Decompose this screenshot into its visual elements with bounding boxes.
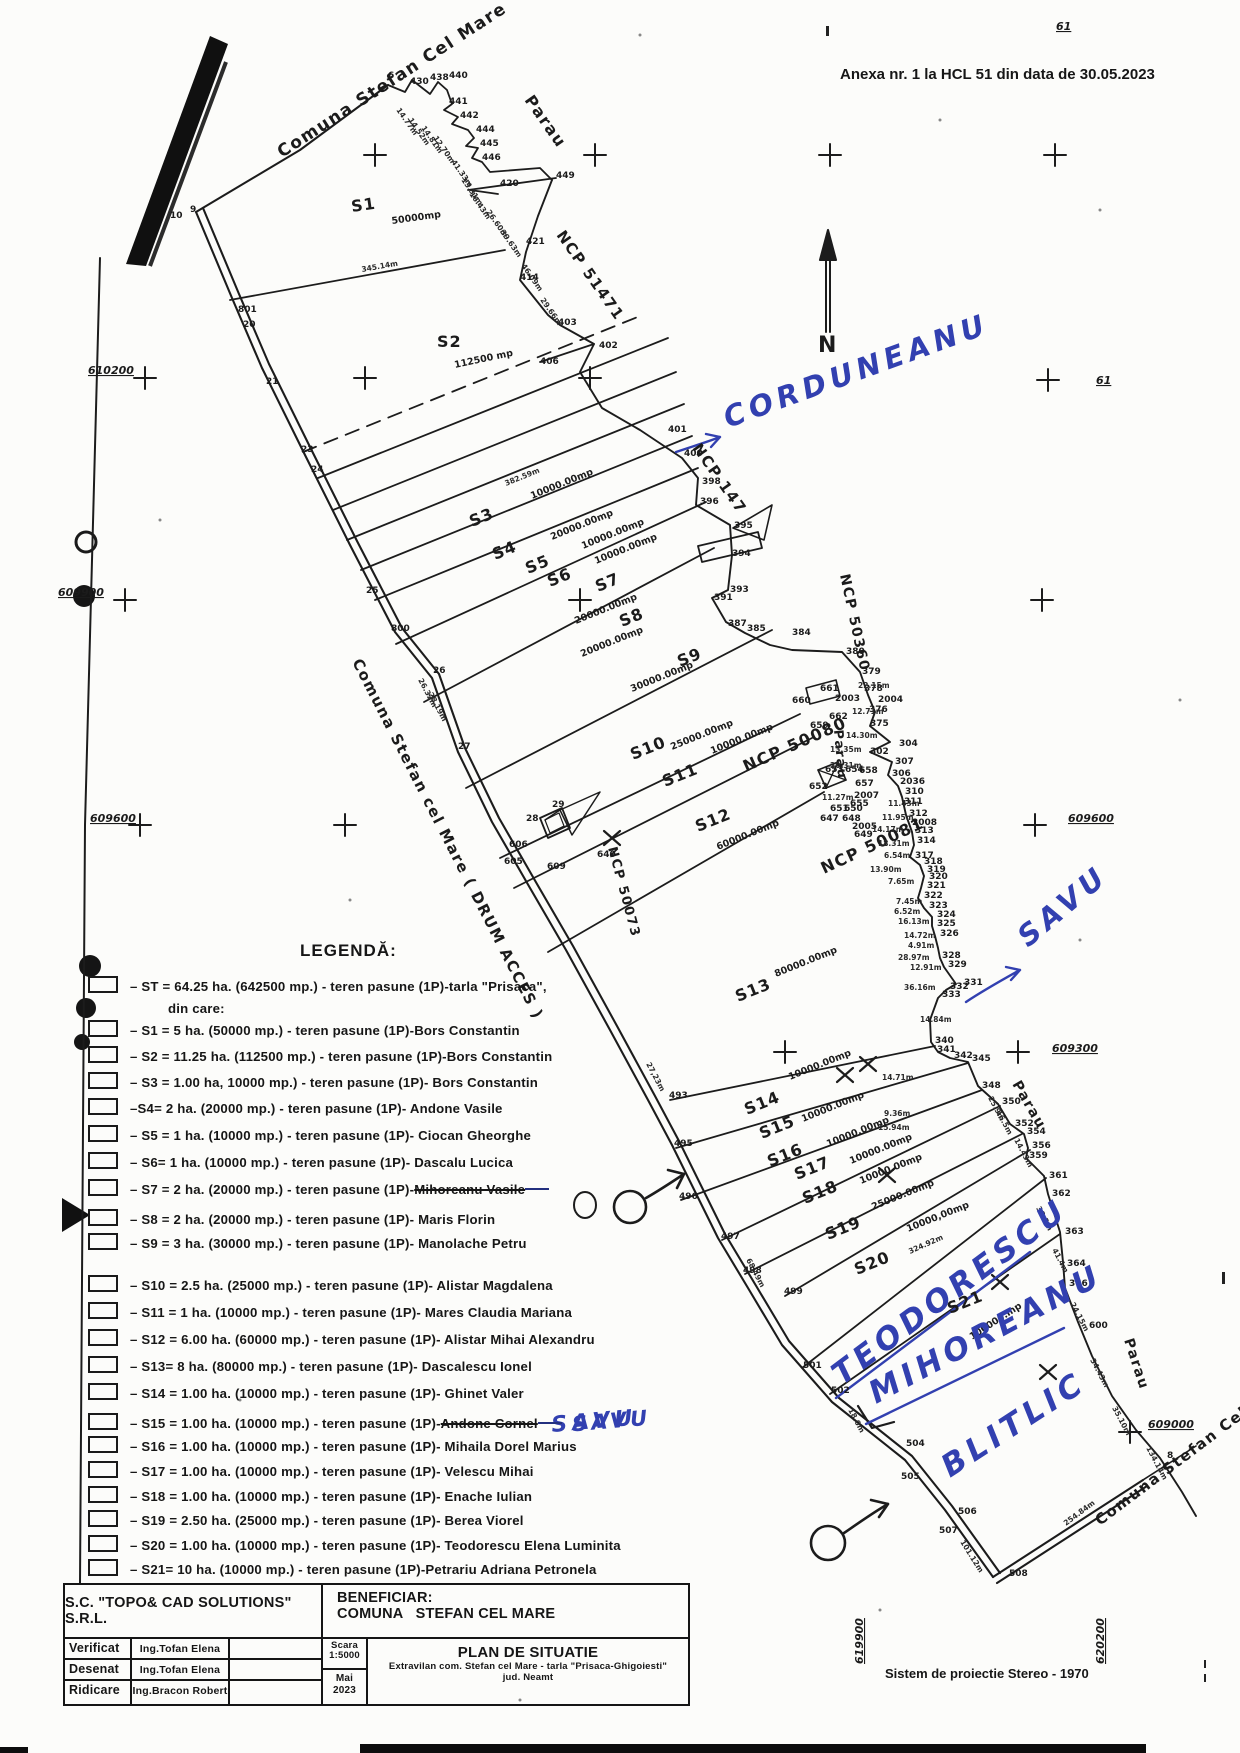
legend-item: – S13= 8 ha. (80000 mp.) - teren pasune …	[88, 1356, 532, 1374]
parcel-area-label: 50000mp	[391, 209, 442, 227]
map-distance-label: 16.13m	[898, 917, 930, 926]
legend-item-text: din care:	[168, 1001, 225, 1016]
north-arrow-label: N	[818, 333, 838, 358]
map-distance-label: 14.30m	[846, 731, 878, 740]
map-distance-label: 9.36m	[884, 1109, 911, 1118]
map-point-label: 507	[939, 1526, 958, 1536]
stream-label-top: Parau	[521, 91, 571, 151]
map-point-label: 640	[597, 850, 616, 860]
legend-item-text: – S6= 1 ha. (10000 mp.) - teren pasune (…	[130, 1155, 513, 1170]
map-point-label: 438	[430, 73, 449, 83]
grid-coordinate-label: 61	[1056, 20, 1071, 33]
legend-item-text: – S16 = 1.00 ha. (10000 mp.) - teren pas…	[130, 1439, 577, 1454]
map-point-label: 661	[820, 684, 839, 694]
legend-item: – S10 = 2.5 ha. (25000 mp.) - teren pasu…	[88, 1275, 553, 1293]
map-distance-label: 14.84m	[920, 1015, 952, 1024]
legend-item: – S20 = 1.00 ha. (10000 mp.) - teren pas…	[88, 1535, 621, 1553]
legend-item-text: – S17 = 1.00 ha. (10000 mp.) - teren pas…	[130, 1464, 534, 1479]
map-distance-label: 29.66m	[538, 296, 564, 327]
legend-symbol-box	[88, 1413, 118, 1430]
grid-coordinate-label: 609900	[58, 586, 104, 599]
map-distance-label: 6.54m	[884, 851, 911, 860]
map-distance-label: 4.91m	[908, 941, 935, 950]
map-point-label: 800	[391, 624, 410, 634]
handwritten-annotation: SAVU	[1011, 858, 1115, 953]
grid-coordinate-label: 619900	[853, 1618, 866, 1664]
legend-item-text: – S12 = 6.00 ha. (60000 mp.) - teren pas…	[130, 1332, 595, 1347]
legend-item: – S12 = 6.00 ha. (60000 mp.) - teren pas…	[88, 1329, 595, 1347]
map-distance-label: 13.90m	[870, 865, 902, 874]
scara-value: 1:5000	[323, 1651, 366, 1661]
legend-symbol-box	[88, 1072, 118, 1089]
map-point-label: 421	[526, 237, 545, 247]
parcel-label: S7	[592, 569, 622, 596]
map-distance-label: 12.71m	[852, 707, 884, 716]
map-point-label: 26	[433, 666, 446, 676]
legend-continuation: din care:	[168, 1000, 225, 1018]
parcel-area-label: 20000.00mp	[579, 625, 645, 660]
plan-subtitle2: jud. Neamt	[368, 1672, 688, 1683]
grid-coordinate-label: 609300	[1052, 1042, 1098, 1055]
legend-item: – S16 = 1.00 ha. (10000 mp.) - teren pas…	[88, 1436, 577, 1454]
map-point-label: 393	[730, 585, 749, 595]
legend-item-text: –S4= 2 ha. (20000 mp.) - teren pasune (1…	[130, 1101, 503, 1116]
legend-symbol-box	[88, 1559, 118, 1576]
map-point-label: 401	[668, 425, 687, 435]
beneficiar-name: COMUNA STEFAN CEL MARE	[337, 1606, 688, 1622]
map-point-label: 420	[500, 179, 519, 189]
legend-item-text: – S19 = 2.50 ha. (25000 mp.) - teren pas…	[130, 1513, 524, 1528]
map-point-label: 321	[927, 881, 946, 891]
legend-symbol-box	[88, 1275, 118, 1292]
legend-item-text: – S2 = 11.25 ha. (112500 mp.) - teren pa…	[130, 1049, 552, 1064]
map-distance-label: 14.72m	[904, 931, 936, 940]
map-point-label: 8	[1167, 1451, 1173, 1461]
map-point-label: 446	[482, 153, 501, 163]
legend-item-text: – S13= 8 ha. (80000 mp.) - teren pasune …	[130, 1359, 532, 1374]
map-point-label: 441	[449, 97, 468, 107]
parcel-label: S19	[822, 1212, 863, 1243]
map-point-label: 326	[940, 929, 959, 939]
date-year: 2023	[323, 1685, 366, 1697]
parcel-area-label: 25000.00mp	[870, 1178, 936, 1213]
map-point-label: 449	[556, 171, 575, 181]
map-point-label: 304	[899, 739, 918, 749]
map-distance-label: 14.17m	[872, 825, 904, 834]
legend-item: – S19 = 2.50 ha. (25000 mp.) - teren pas…	[88, 1510, 524, 1528]
legend-item-text: – S18 = 1.00 ha. (10000 mp.) - teren pas…	[130, 1489, 532, 1504]
map-point-label: 310	[905, 787, 924, 797]
map-point-label: 440	[449, 71, 468, 81]
legend-item: – S1 = 5 ha. (50000 mp.) - teren pasune …	[88, 1020, 520, 1038]
legend-item: – S5 = 1 ha. (10000 mp.) - teren pasune …	[88, 1125, 531, 1143]
map-point-label: 605	[504, 857, 523, 867]
map-point-label: 396	[700, 497, 719, 507]
map-distance-label: 324.92m	[907, 1233, 944, 1256]
legend-item-text: – S3 = 1.00 ha, 10000 mp.) - teren pasun…	[130, 1075, 538, 1090]
map-distance-label: 101.12m	[958, 1538, 985, 1574]
map-point-label: 25	[366, 586, 379, 596]
map-point-label: 660	[792, 696, 811, 706]
map-point-label: 600	[1089, 1321, 1108, 1331]
map-point-label: 493	[669, 1091, 688, 1101]
legend-item-struck-name: Andone Cornel	[441, 1416, 562, 1431]
parcel-area-label: 112500 mp	[453, 348, 514, 371]
legend-symbol-box	[88, 976, 118, 993]
legend-item-text: – S14 = 1.00 ha. (10000 mp.) - teren pas…	[130, 1386, 524, 1401]
map-distance-label: 18.31m	[878, 839, 910, 848]
map-distance-label: 13.35m	[830, 745, 862, 754]
map-distance-label: 11.43m	[888, 799, 920, 808]
map-point-label: 27	[458, 742, 471, 752]
grid-coordinate-label: 620200	[1094, 1618, 1107, 1664]
map-point-label: 363	[1065, 1227, 1084, 1237]
map-distance-label: 345.14m	[361, 259, 399, 274]
map-point-label: 325	[937, 919, 956, 929]
legend-symbol-box	[88, 1233, 118, 1250]
legend-title: LEGENDĂ:	[300, 941, 397, 961]
map-point-label: 342	[954, 1051, 973, 1061]
map-point-label: 505	[901, 1472, 920, 1482]
map-point-label: 2003	[835, 694, 860, 704]
map-point-label: 406	[540, 357, 559, 367]
legend-item: – S11 = 1 ha. (10000 mp.) - teren pasune…	[88, 1302, 572, 1320]
map-point-label: 649	[854, 830, 873, 840]
parcel-label: S15	[756, 1111, 797, 1142]
projection-note: Sistem de proiectie Stereo - 1970	[885, 1666, 1089, 1681]
legend-item: – S7 = 2 ha. (20000 mp.) - teren pasune …	[88, 1179, 549, 1197]
parcel-label: S18	[799, 1176, 840, 1207]
map-point-label: 329	[948, 960, 967, 970]
ncp-51471-label: NCP 51471	[553, 227, 628, 324]
map-point-label: 2036	[900, 777, 925, 787]
map-point-label: 2004	[878, 695, 903, 705]
parcel-label: S12	[692, 804, 733, 835]
parcel-area-label: 10000.00mp	[800, 1090, 866, 1125]
map-distance-label: 36.16m	[904, 983, 936, 992]
legend-item: – S8 = 2 ha. (20000 mp.) - teren pasune …	[88, 1209, 495, 1227]
map-point-label: 652	[809, 782, 828, 792]
map-point-label: 658	[859, 766, 878, 776]
legend-item: – S9 = 3 ha. (30000 mp.) - teren pasune …	[88, 1233, 527, 1251]
road-label-top: Comuna Stefan Cel Mare	[274, 0, 511, 162]
parcel-area-label: 30000.00mp	[629, 660, 695, 695]
map-point-label: 394	[732, 549, 751, 559]
map-point-label: 495	[674, 1139, 693, 1149]
map-point-label: 348	[982, 1081, 1001, 1091]
legend-symbol-box	[88, 1510, 118, 1527]
map-point-label: 307	[895, 757, 914, 767]
map-point-label: 354	[1027, 1127, 1046, 1137]
grid-coordinate-label: 609600	[1068, 812, 1114, 825]
map-point-label: 24	[311, 465, 324, 475]
legend-item-text: – S1 = 5 ha. (50000 mp.) - teren pasune …	[130, 1023, 520, 1038]
handwritten-annotation: CORDUNEANU	[719, 307, 994, 435]
legend-item-text: – ST = 64.25 ha. (642500 mp.) - teren pa…	[130, 979, 547, 994]
map-point-label: 499	[784, 1287, 803, 1297]
legend-item-text: – S7 = 2 ha. (20000 mp.) - teren pasune …	[130, 1182, 414, 1197]
legend-item: – S18 = 1.00 ha. (10000 mp.) - teren pas…	[88, 1486, 532, 1504]
map-point-label: 9	[190, 205, 196, 215]
legend-symbol-box	[88, 1436, 118, 1453]
map-point-label: 341	[937, 1045, 956, 1055]
company-name: S.C. "TOPO& CAD SOLUTIONS" S.R.L.	[65, 1595, 321, 1627]
parcel-label: S14	[741, 1087, 782, 1118]
legend-item: – S3 = 1.00 ha, 10000 mp.) - teren pasun…	[88, 1072, 538, 1090]
parcel-label: S10	[627, 732, 668, 763]
handwritten-annotation: BLITLIC	[935, 1365, 1093, 1485]
map-point-label: 445	[480, 139, 499, 149]
map-distance-label: 11.27m	[822, 793, 854, 802]
legend-item-text: – S8 = 2 ha. (20000 mp.) - teren pasune …	[130, 1212, 495, 1227]
map-point-label: 801	[238, 305, 257, 315]
map-point-label: 23	[301, 445, 314, 455]
parcel-label: S2	[437, 332, 462, 351]
map-point-label: 400	[684, 449, 703, 459]
map-point-label: 508	[1009, 1569, 1028, 1579]
map-distance-label: 14.71m	[882, 1073, 914, 1082]
map-point-label: 496	[679, 1192, 698, 1202]
map-distance-label: 39.63m	[498, 228, 524, 259]
road-label-bottom: Comuna Stefan Cel Mare	[1092, 1369, 1240, 1529]
legend-item-text: – S10 = 2.5 ha. (25000 mp.) - teren pasu…	[130, 1278, 553, 1293]
map-distance-label: 11.95m	[882, 813, 914, 822]
map-point-label: 504	[906, 1439, 925, 1449]
map-point-label: 442	[460, 111, 479, 121]
grid-coordinate-label: 61	[1096, 374, 1111, 387]
legend-symbol-box	[88, 1356, 118, 1373]
plan-title: PLAN DE SITUATIE	[368, 1644, 688, 1661]
anexa-note: Anexa nr. 1 la HCL 51 din data de 30.05.…	[840, 66, 1155, 83]
grid-coordinate-label: 610200	[88, 364, 134, 377]
map-point-label: 375	[870, 719, 889, 729]
legend-symbol-box	[88, 1329, 118, 1346]
map-point-label: 10	[170, 211, 183, 221]
map-point-label: 385	[747, 624, 766, 634]
legend-item: – S6= 1 ha. (10000 mp.) - teren pasune (…	[88, 1152, 513, 1170]
parcel-label: S11	[659, 759, 700, 790]
map-distance-label: 6.52m	[894, 907, 921, 916]
map-point-label: 28	[526, 814, 539, 824]
legend-symbol-box	[88, 1383, 118, 1400]
beneficiar-label: BENEFICIAR:	[337, 1590, 688, 1606]
map-point-label: 609	[547, 862, 566, 872]
map-distance-label: 16.5m	[994, 1109, 1014, 1137]
legend-item: – S17 = 1.00 ha. (10000 mp.) - teren pas…	[88, 1461, 534, 1479]
access-road-label: Comuna Stefan cel Mare ( DRUM ACCES )	[348, 656, 547, 1023]
legend-symbol-box	[88, 1152, 118, 1169]
map-point-label: 21	[266, 377, 279, 387]
map-point-label: 380	[846, 647, 865, 657]
legend-symbol-box	[88, 1020, 118, 1037]
map-point-label: 384	[792, 628, 811, 638]
map-point-label: 350	[1002, 1097, 1021, 1107]
parcel-label: S3	[466, 504, 496, 531]
grid-coordinate-label: 609000	[1148, 1418, 1194, 1431]
map-distance-label: 22.15m	[858, 681, 890, 690]
map-point-label: 20	[243, 320, 256, 330]
role-desenat: Desenat	[65, 1662, 119, 1676]
map-distance-label: 7.65m	[888, 877, 915, 886]
legend-symbol-box	[88, 1125, 118, 1142]
map-point-label: 444	[476, 125, 495, 135]
map-distance-label: 12.91m	[910, 963, 942, 972]
name-desenat: Ing.Tofan Elena	[140, 1664, 220, 1676]
map-point-label: 659	[810, 721, 829, 731]
map-point-label: 647	[820, 814, 839, 824]
map-point-label: 657	[855, 779, 874, 789]
stream-label-low: Parau	[1120, 1336, 1152, 1391]
plan-subtitle: Extravilan com. Stefan cel Mare - tarla …	[368, 1661, 688, 1672]
map-point-label: 430	[410, 77, 429, 87]
legend-symbol-box	[88, 1486, 118, 1503]
legend-item: – S15 = 1.00 ha. (10000 mp.) - teren pas…	[88, 1409, 651, 1427]
map-point-label: 313	[915, 826, 934, 836]
role-ridicare: Ridicare	[65, 1683, 120, 1697]
legend-symbol-box	[88, 1209, 118, 1226]
name-verificat: Ing.Tofan Elena	[140, 1643, 220, 1655]
role-verificat: Verificat	[65, 1641, 119, 1655]
map-distance-label: 20.31m	[830, 761, 862, 770]
map-point-label: 379	[862, 667, 881, 677]
legend-item: – ST = 64.25 ha. (642500 mp.) - teren pa…	[88, 976, 547, 994]
legend-item-text: – S5 = 1 ha. (10000 mp.) - teren pasune …	[130, 1128, 531, 1143]
map-point-label: 29	[552, 800, 565, 810]
map-point-label: 501	[803, 1361, 822, 1371]
legend-item: – S21= 10 ha. (10000 mp.) - teren pasune…	[88, 1559, 596, 1577]
legend-item-text: – S21= 10 ha. (10000 mp.) - teren pasune…	[130, 1562, 596, 1577]
map-point-label: 395	[734, 521, 753, 531]
map-point-label: 662	[829, 712, 848, 722]
legend-symbol-box	[88, 1302, 118, 1319]
legend-item: – S2 = 11.25 ha. (112500 mp.) - teren pa…	[88, 1046, 552, 1064]
legend-item-text: – S9 = 3 ha. (30000 mp.) - teren pasune …	[130, 1236, 527, 1251]
legend-item-text: – S20 = 1.00 ha. (10000 mp.) - teren pas…	[130, 1538, 621, 1553]
map-distance-label: 7.45m	[896, 897, 923, 906]
parcel-area-label: 80000.00mp	[773, 945, 839, 980]
legend-item: – S14 = 1.00 ha. (10000 mp.) - teren pas…	[88, 1383, 524, 1401]
legend-symbol-box	[88, 1179, 118, 1196]
map-point-label: 345	[972, 1054, 991, 1064]
grid-coordinate-label: 609600	[90, 812, 136, 825]
scanned-plan-page: Comuna Stefan Cel Mare Parau NCP 51471 N…	[0, 0, 1240, 1753]
map-point-label: 650	[844, 804, 863, 814]
map-point-label: 606	[509, 840, 528, 850]
map-point-label: 506	[958, 1507, 977, 1517]
legend-symbol-box	[88, 1046, 118, 1063]
map-point-label: 333	[942, 990, 961, 1000]
map-point-label: 387	[728, 619, 747, 629]
map-distance-label: 28.97m	[898, 953, 930, 962]
legend-symbol-box	[88, 1535, 118, 1552]
map-distance-label: 34.43m	[1088, 1357, 1111, 1389]
map-point-label: 361	[1049, 1171, 1068, 1181]
legend-item-text: – S15 = 1.00 ha. (10000 mp.) - teren pas…	[130, 1416, 441, 1431]
legend-item: –S4= 2 ha. (20000 mp.) - teren pasune (1…	[88, 1098, 503, 1116]
map-point-label: 497	[721, 1232, 740, 1242]
ncp-50360-label: NCP 50360	[836, 573, 872, 673]
legend-item-text: – S11 = 1 ha. (10000 mp.) - teren pasune…	[130, 1305, 572, 1320]
map-point-label: 6	[388, 71, 394, 81]
legend-item-struck-name: Mihoreanu Vasile	[414, 1182, 549, 1197]
legend-symbol-box	[88, 1461, 118, 1478]
map-point-label: 302	[870, 747, 889, 757]
legend-symbol-box	[88, 1098, 118, 1115]
parcel-label: S13	[732, 974, 773, 1005]
map-point-label: 391	[714, 593, 733, 603]
map-point-label: 398	[702, 477, 721, 487]
map-point-label: 402	[599, 341, 618, 351]
parcel-label: S1	[350, 194, 377, 216]
map-distance-label: 27,23m	[644, 1061, 667, 1093]
map-point-label: 322	[924, 891, 943, 901]
parcel-label: S4	[489, 537, 519, 564]
map-distance-label: 18.0m	[846, 1407, 866, 1435]
map-point-label: 314	[917, 836, 936, 846]
date-month: Mai	[323, 1673, 366, 1685]
map-point-label: 356	[1032, 1141, 1051, 1151]
name-ridicare: Ing.Bracon Robert	[133, 1685, 228, 1697]
